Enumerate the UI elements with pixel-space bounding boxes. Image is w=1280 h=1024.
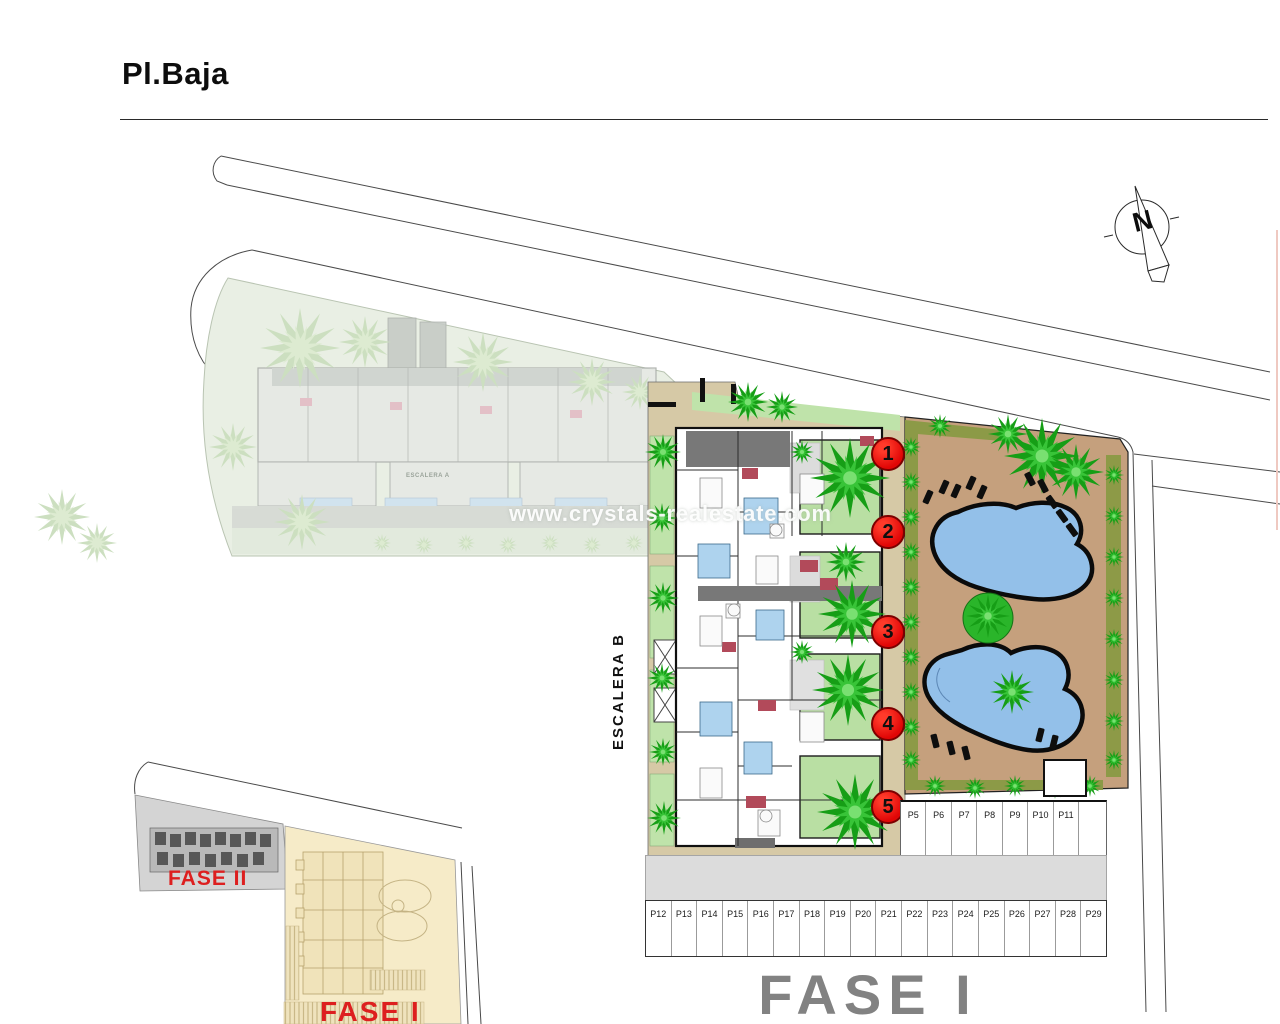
parking-stall: P12 xyxy=(646,901,672,956)
parking-stall: P27 xyxy=(1030,901,1056,956)
parking-stall: P5 xyxy=(901,802,926,857)
parking-stall: P26 xyxy=(1005,901,1031,956)
parking-stall: P7 xyxy=(952,802,977,857)
parking-stall: P20 xyxy=(851,901,877,956)
inset-phase-1-label: FASE I xyxy=(320,996,421,1024)
inset-phase-2-label: FASE II xyxy=(168,867,247,891)
parking-stall: P13 xyxy=(672,901,698,956)
stairwell-b-label: ESCALERA B xyxy=(610,597,642,787)
inset-fase2-building xyxy=(150,828,278,872)
parking-stall: P25 xyxy=(979,901,1005,956)
parking-row-top: P5P6P7P8P9P10P11 xyxy=(900,800,1107,858)
parking-stall: P6 xyxy=(926,802,951,857)
title-divider xyxy=(120,119,1268,120)
parking-stall: P16 xyxy=(748,901,774,956)
driveway-strip xyxy=(645,855,1107,902)
parking-stall: P14 xyxy=(697,901,723,956)
parking-stall: P28 xyxy=(1056,901,1082,956)
parking-stall: P23 xyxy=(928,901,954,956)
parking-stall: P10 xyxy=(1028,802,1053,857)
parking-stall: P24 xyxy=(953,901,979,956)
parking-stall: P18 xyxy=(800,901,826,956)
parking-stall: P19 xyxy=(825,901,851,956)
parking-stall: P21 xyxy=(876,901,902,956)
parking-stall: P29 xyxy=(1081,901,1106,956)
parking-stall: P15 xyxy=(723,901,749,956)
parking-stall: P8 xyxy=(977,802,1002,857)
parking-stall: P22 xyxy=(902,901,928,956)
phase-1-title: FASE I xyxy=(738,962,998,1024)
stairwell-a-label: ESCALERA A xyxy=(406,473,450,479)
parking-stalls-top: P5P6P7P8P9P10P11 xyxy=(901,802,1078,857)
pool-equipment-building xyxy=(1044,760,1086,796)
parking-stall: P11 xyxy=(1054,802,1078,857)
pool-area xyxy=(901,414,1128,799)
watermark-text: www.crystals-realestate.com xyxy=(509,501,832,527)
page-title: Pl.Baja xyxy=(122,56,229,92)
inset-key-plan xyxy=(135,762,481,1024)
parking-stall: P9 xyxy=(1003,802,1028,857)
site-plan-page: Pl.Baja N www.crystals-realestate.com ES… xyxy=(0,0,1280,1024)
parking-stall: P17 xyxy=(774,901,800,956)
parking-stall-unlabeled xyxy=(1078,802,1106,857)
parking-row-bottom: P12P13P14P15P16P17P18P19P20P21P22P23P24P… xyxy=(645,900,1107,957)
